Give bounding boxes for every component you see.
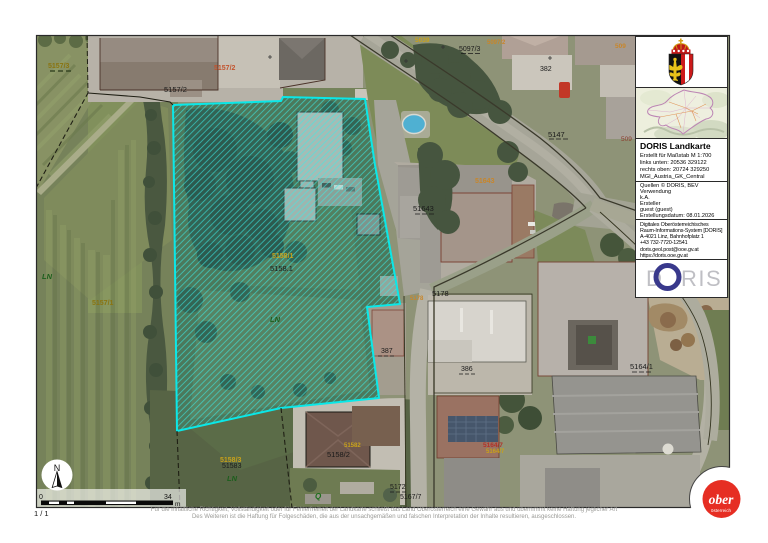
svg-text:34: 34 bbox=[164, 494, 172, 501]
svg-text:5164/1: 5164/1 bbox=[630, 362, 653, 371]
svg-text:5147: 5147 bbox=[548, 130, 565, 139]
svg-text:5157/2: 5157/2 bbox=[214, 65, 236, 72]
svg-text:5097/3: 5097/3 bbox=[459, 46, 481, 53]
svg-text:5158/2: 5158/2 bbox=[327, 450, 350, 459]
svg-text:5097/2: 5097/2 bbox=[487, 40, 506, 46]
svg-text:5178: 5178 bbox=[432, 289, 449, 298]
svg-text:509: 509 bbox=[621, 136, 632, 143]
svg-text:ober: ober bbox=[709, 492, 734, 507]
svg-text:5164/7: 5164/7 bbox=[486, 449, 505, 455]
svg-text:51643: 51643 bbox=[413, 204, 434, 213]
svg-text:382: 382 bbox=[540, 66, 552, 73]
svg-text:5158/1: 5158/1 bbox=[272, 253, 294, 260]
svg-text:5164/7: 5164/7 bbox=[483, 442, 503, 449]
svg-text:LN: LN bbox=[270, 315, 281, 324]
svg-text:RIS: RIS bbox=[681, 266, 722, 291]
svg-text:5157/1: 5157/1 bbox=[92, 300, 114, 307]
svg-text:51582: 51582 bbox=[344, 443, 361, 449]
svg-text:5172: 5172 bbox=[390, 484, 406, 491]
svg-text:5167/7: 5167/7 bbox=[400, 494, 422, 501]
svg-text:5158.1: 5158.1 bbox=[270, 264, 293, 273]
svg-text:Q: Q bbox=[315, 492, 322, 501]
svg-text:387: 387 bbox=[381, 348, 393, 355]
svg-text:LN: LN bbox=[227, 474, 238, 483]
svg-text:5157/3: 5157/3 bbox=[48, 63, 70, 70]
svg-text:51583: 51583 bbox=[222, 463, 242, 470]
svg-text:509: 509 bbox=[615, 43, 626, 50]
svg-text:LN: LN bbox=[42, 272, 53, 281]
svg-text:0: 0 bbox=[39, 494, 43, 501]
svg-text:5039: 5039 bbox=[415, 37, 430, 44]
svg-text:5157/2: 5157/2 bbox=[164, 85, 187, 94]
svg-text:386: 386 bbox=[461, 366, 473, 373]
svg-text:5178: 5178 bbox=[410, 296, 424, 302]
svg-text:51643: 51643 bbox=[475, 178, 495, 185]
